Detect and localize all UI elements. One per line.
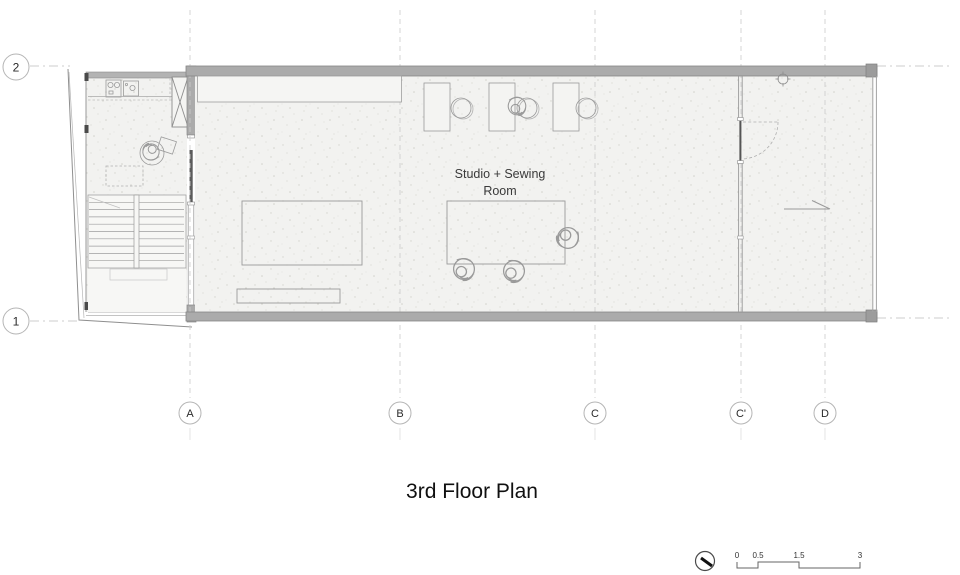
scale-tick-3: 3 [858,551,863,560]
door-jamb [188,135,195,138]
table [447,201,565,264]
desk-row [424,83,598,131]
scale-bar-line [737,562,860,568]
wall-end-cap [866,310,877,322]
wall-joint [738,236,744,239]
column-marker-icon [85,302,89,310]
door-jamb [738,161,744,164]
stairs-icon [88,195,186,312]
grid-label-b: B [396,408,403,420]
desk [424,83,450,131]
grid-label-2: 2 [13,61,20,75]
studio-floor [195,76,873,312]
grid-label-1: 1 [13,315,20,329]
grid-label-c: C [591,408,599,420]
grid-label-a: A [186,408,194,420]
grid-row-bubbles: 2 1 [3,54,29,334]
work-counter [198,76,402,102]
wall-end-cap [866,64,877,77]
sheet-title: 3rd Floor Plan [406,480,538,503]
wall-joint [188,236,195,239]
desk [553,83,579,131]
divider-wall [187,66,196,322]
column-marker-icon [85,73,89,81]
grid-label-d: D [821,408,829,420]
bottom-wall [186,312,877,321]
stair-stringer [134,195,139,268]
column-marker-icon [85,125,89,133]
top-wall [186,66,877,76]
table [242,201,362,265]
floor-plan-sheet: Studio + Sewing Room A B C [0,0,960,575]
north-arrow-icon [696,552,715,571]
floor-plan-drawing: Studio + Sewing Room A B C [0,0,960,575]
door-jamb [738,118,744,121]
shaft-x-icon [172,77,188,127]
room-label-line1: Studio + Sewing [455,167,546,181]
grid-label-c-prime: C' [736,408,746,420]
scale-tick-05: 0.5 [752,551,764,560]
annex-inner-wall [69,72,84,318]
grid-column-bubbles: A B C C' D [179,402,836,424]
low-shelf [237,289,340,303]
scale-tick-15: 1.5 [793,551,805,560]
scale-bar: 0 0.5 1.5 3 [735,551,863,568]
room-label-line2: Room [483,184,516,198]
scale-tick-0: 0 [735,551,740,560]
door-jamb [188,202,195,205]
